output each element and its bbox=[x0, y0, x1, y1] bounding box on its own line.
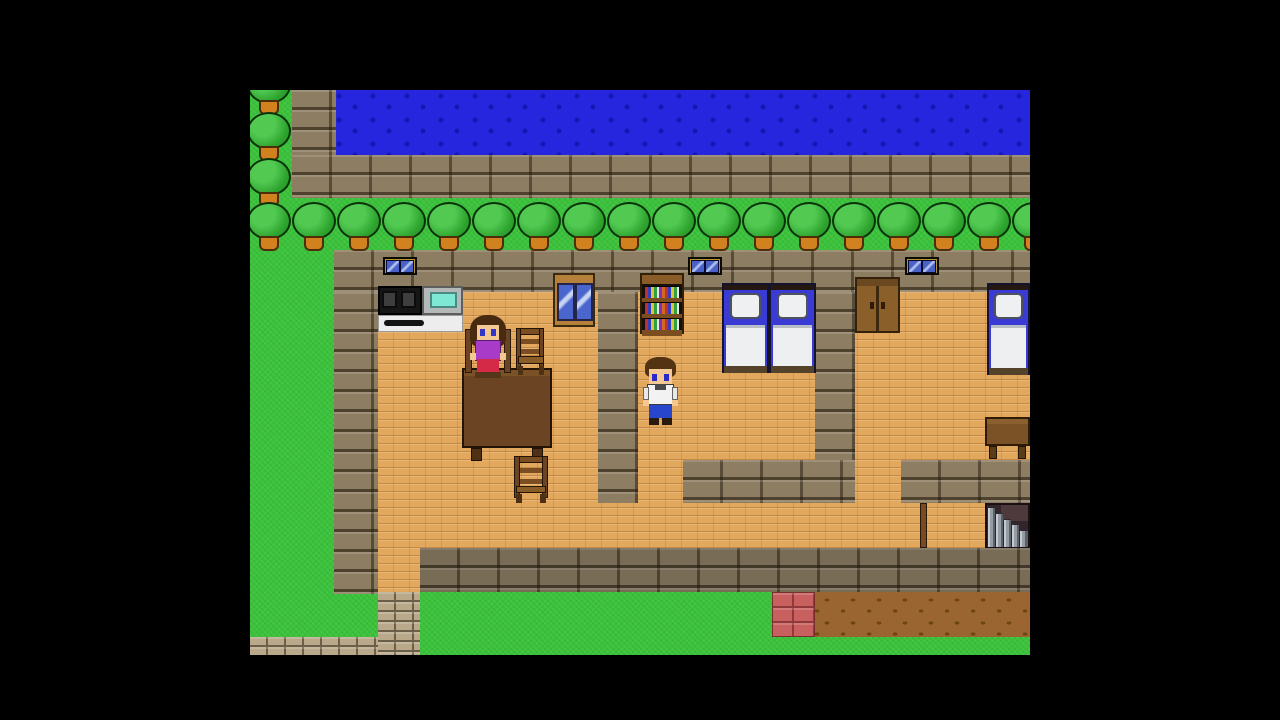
chair-slat bbox=[521, 349, 539, 354]
chair-slat bbox=[520, 468, 542, 473]
table-top bbox=[462, 368, 552, 448]
tree bbox=[292, 202, 336, 250]
tree bbox=[607, 202, 651, 250]
chair-leg bbox=[516, 494, 522, 503]
bed-headboard bbox=[771, 285, 814, 290]
kitchen-table bbox=[462, 368, 552, 461]
player-boy[interactable] bbox=[643, 357, 678, 426]
stair-step bbox=[996, 513, 1003, 547]
boy-arm bbox=[643, 387, 649, 400]
interior-wall-south-mid bbox=[683, 460, 855, 503]
chair-leg bbox=[540, 494, 546, 503]
cabinet-divider bbox=[876, 286, 879, 331]
stair-step bbox=[1012, 524, 1019, 547]
stove-burner bbox=[401, 291, 416, 308]
cabinet-handle bbox=[870, 302, 874, 309]
red-brick-patch bbox=[772, 592, 815, 637]
tree bbox=[697, 202, 741, 250]
kitchen-unit bbox=[378, 286, 463, 332]
stove-burner bbox=[382, 291, 397, 308]
bed-blanket bbox=[991, 328, 1026, 368]
sink-basin bbox=[430, 292, 457, 308]
book-row bbox=[645, 318, 679, 330]
chair-slat bbox=[520, 479, 542, 484]
bed-footboard bbox=[989, 368, 1028, 375]
tree bbox=[472, 202, 516, 250]
bed-headboard bbox=[724, 285, 767, 290]
tree bbox=[787, 202, 831, 250]
tree bbox=[832, 202, 876, 250]
house-west-wall bbox=[334, 292, 378, 594]
bed-pillow bbox=[730, 293, 761, 319]
boy-shoe bbox=[662, 418, 672, 425]
boy-arm bbox=[672, 387, 678, 400]
chair-seat bbox=[516, 486, 546, 493]
tree bbox=[967, 202, 1011, 250]
woman-hand bbox=[470, 353, 476, 360]
bed bbox=[987, 283, 1030, 375]
woman-eye bbox=[491, 329, 496, 336]
bookshelf-top bbox=[642, 275, 682, 284]
woman-hand bbox=[500, 353, 506, 360]
npc-woman-sitting[interactable] bbox=[465, 315, 511, 378]
dirt-patch bbox=[815, 592, 1030, 637]
kitchen-window bbox=[553, 273, 595, 327]
tree bbox=[250, 202, 291, 250]
path-from-door bbox=[378, 592, 420, 655]
boy-pants bbox=[649, 405, 672, 418]
boy-eye bbox=[652, 374, 657, 381]
chair-slat bbox=[521, 339, 539, 344]
bed-footboard bbox=[771, 366, 814, 373]
tree bbox=[517, 202, 561, 250]
table-leg bbox=[471, 448, 482, 461]
open-door-post[interactable] bbox=[920, 503, 927, 548]
game-viewport[interactable] bbox=[250, 90, 1030, 655]
tree bbox=[382, 202, 426, 250]
desk-leg bbox=[989, 446, 997, 459]
stair-step bbox=[1020, 530, 1028, 547]
chair-base bbox=[475, 372, 501, 378]
wardrobe-cabinet bbox=[855, 277, 900, 333]
bed-pillow bbox=[777, 293, 808, 319]
bed-blanket bbox=[773, 328, 812, 366]
cabinet-top bbox=[857, 279, 898, 286]
tree bbox=[877, 202, 921, 250]
bed-pillow bbox=[994, 293, 1023, 319]
shelf-board bbox=[642, 330, 682, 336]
vent-window bbox=[688, 257, 722, 275]
lake-water bbox=[330, 90, 1030, 155]
bed-blanket bbox=[726, 328, 765, 366]
bed-headboard bbox=[989, 285, 1028, 290]
bed-footboard bbox=[724, 366, 767, 373]
tree bbox=[250, 158, 291, 206]
house-south-wall bbox=[420, 548, 1030, 592]
interior-wall-south-right bbox=[901, 460, 1030, 503]
tree bbox=[427, 202, 471, 250]
tree bbox=[742, 202, 786, 250]
tree bbox=[250, 90, 291, 114]
book-row bbox=[645, 302, 679, 314]
vent-window bbox=[905, 257, 939, 275]
chair-leg bbox=[518, 366, 523, 375]
interior-wall-bedroom bbox=[815, 292, 855, 460]
tree bbox=[250, 112, 291, 160]
south-doorway-floor bbox=[378, 548, 420, 592]
desk-leg bbox=[1018, 446, 1026, 459]
vent-window bbox=[383, 257, 417, 275]
bookshelf bbox=[640, 273, 684, 334]
tree bbox=[562, 202, 606, 250]
boy-eye bbox=[664, 374, 669, 381]
book-row bbox=[645, 286, 679, 298]
desk-top bbox=[985, 417, 1030, 446]
cabinet-handle bbox=[881, 302, 885, 309]
letterbox-screen bbox=[0, 0, 1280, 720]
tree bbox=[337, 202, 381, 250]
chair-seat bbox=[518, 356, 544, 364]
boy-collar bbox=[655, 384, 666, 390]
stone-wall-lakefront bbox=[292, 155, 1030, 198]
woman-skirt bbox=[477, 359, 499, 372]
tree bbox=[1012, 202, 1030, 250]
bed bbox=[769, 283, 816, 373]
stair-step bbox=[988, 507, 995, 547]
tree bbox=[652, 202, 696, 250]
boy-shoe bbox=[649, 418, 659, 425]
bed bbox=[722, 283, 769, 373]
woman-eye bbox=[480, 329, 485, 336]
path-along-edge bbox=[250, 637, 378, 655]
boy-hand bbox=[672, 400, 678, 406]
desk bbox=[985, 417, 1030, 459]
oven-handle bbox=[384, 320, 424, 326]
woman-blouse bbox=[475, 340, 501, 361]
tree bbox=[922, 202, 966, 250]
interior-wall-kitchen bbox=[598, 292, 638, 503]
basement-stairs[interactable] bbox=[985, 503, 1030, 549]
chair bbox=[516, 328, 548, 375]
chair-leg bbox=[539, 366, 544, 375]
stair-step bbox=[1004, 519, 1011, 547]
chair bbox=[512, 456, 550, 503]
